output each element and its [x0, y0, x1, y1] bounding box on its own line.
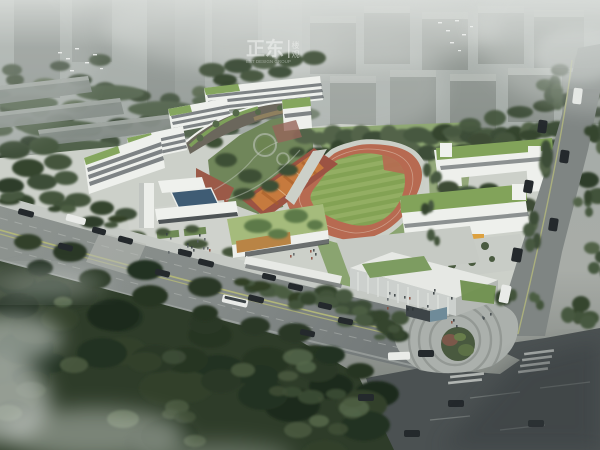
svg-text:正东: 正东: [246, 37, 284, 60]
svg-text:观: 观: [292, 50, 300, 59]
svg-text:EST DESIGN GROUP: EST DESIGN GROUP: [246, 59, 291, 64]
svg-text:楼: 楼: [292, 40, 300, 50]
